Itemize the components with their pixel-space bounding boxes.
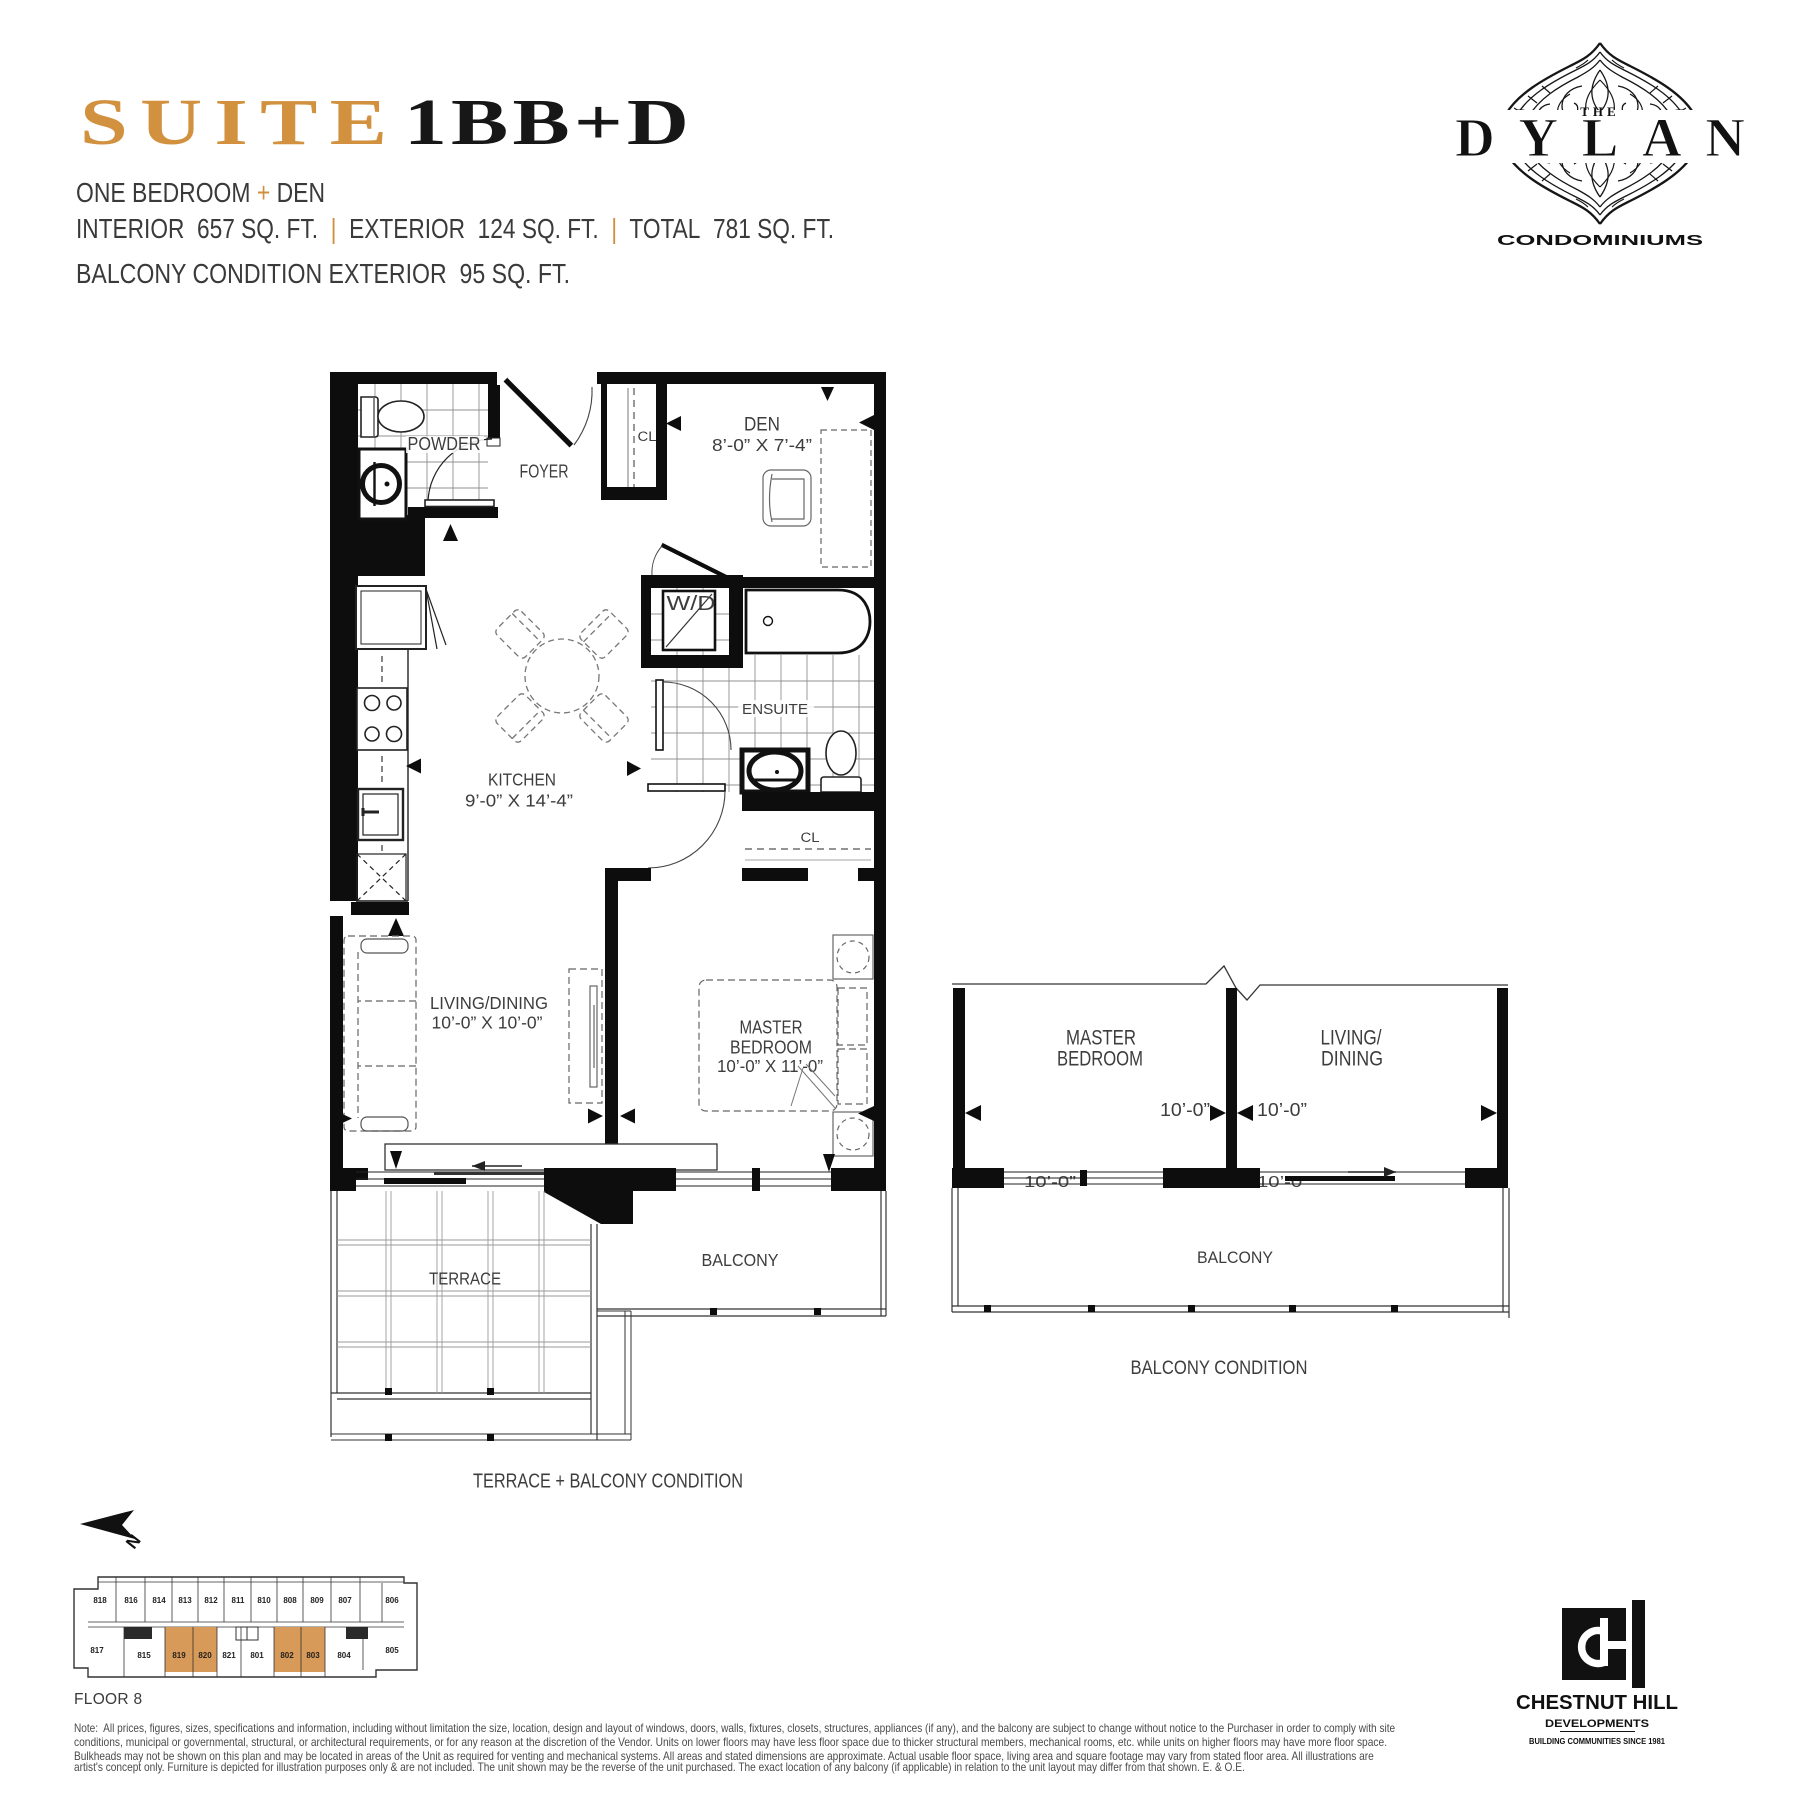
svg-text:8’-0” X 7’-4”: 8’-0” X 7’-4” bbox=[712, 435, 812, 455]
svg-text:804: 804 bbox=[337, 1651, 351, 1660]
svg-text:CL: CL bbox=[638, 429, 658, 444]
svg-text:10’-0”: 10’-0” bbox=[1257, 1100, 1307, 1120]
svg-text:801: 801 bbox=[250, 1651, 264, 1660]
svg-text:10’-0”: 10’-0” bbox=[1160, 1100, 1210, 1120]
svg-text:POWDER: POWDER bbox=[408, 434, 481, 454]
svg-text:813: 813 bbox=[178, 1596, 192, 1605]
svg-text:802: 802 bbox=[280, 1651, 294, 1660]
svg-text:811: 811 bbox=[232, 1596, 245, 1605]
svg-text:10’-0”: 10’-0” bbox=[1024, 1174, 1076, 1191]
svg-text:807: 807 bbox=[338, 1596, 352, 1605]
svg-text:809: 809 bbox=[310, 1596, 324, 1605]
svg-text:BUILDING COMMUNITIES SINCE 198: BUILDING COMMUNITIES SINCE 1981 bbox=[1529, 1736, 1665, 1746]
svg-text:BALCONY CONDITION: BALCONY CONDITION bbox=[1131, 1358, 1308, 1379]
svg-text:BALCONY: BALCONY bbox=[702, 1250, 779, 1270]
svg-text:816: 816 bbox=[124, 1596, 138, 1605]
svg-text:CL: CL bbox=[801, 830, 821, 845]
svg-text:BEDROOM: BEDROOM bbox=[1057, 1048, 1143, 1071]
svg-text:DINING: DINING bbox=[1321, 1048, 1383, 1071]
svg-text:W/D: W/D bbox=[667, 593, 716, 615]
svg-text:819: 819 bbox=[172, 1651, 186, 1660]
svg-text:818: 818 bbox=[93, 1596, 107, 1605]
svg-text:KITCHEN: KITCHEN bbox=[488, 770, 556, 790]
svg-text:808: 808 bbox=[283, 1596, 297, 1605]
svg-text:MASTER: MASTER bbox=[740, 1018, 803, 1038]
svg-text:ENSUITE: ENSUITE bbox=[742, 702, 808, 718]
svg-text:806: 806 bbox=[385, 1596, 399, 1605]
svg-text:815: 815 bbox=[137, 1651, 151, 1660]
svg-text:TERRACE + BALCONY CONDITION: TERRACE + BALCONY CONDITION bbox=[473, 1471, 743, 1493]
svg-text:814: 814 bbox=[152, 1596, 166, 1605]
svg-text:810: 810 bbox=[257, 1596, 271, 1605]
svg-text:LIVING/DINING: LIVING/DINING bbox=[430, 993, 548, 1013]
svg-text:BALCONY: BALCONY bbox=[1197, 1248, 1273, 1267]
svg-text:LIVING/: LIVING/ bbox=[1321, 1027, 1382, 1050]
svg-text:812: 812 bbox=[204, 1596, 218, 1605]
svg-text:821: 821 bbox=[222, 1651, 236, 1660]
svg-text:CHESTNUT HILL: CHESTNUT HILL bbox=[1516, 1692, 1678, 1714]
svg-text:820: 820 bbox=[198, 1651, 212, 1660]
svg-text:FOYER: FOYER bbox=[520, 462, 569, 482]
svg-text:MASTER: MASTER bbox=[1066, 1027, 1136, 1050]
svg-text:803: 803 bbox=[306, 1651, 320, 1660]
svg-text:DEVELOPMENTS: DEVELOPMENTS bbox=[1545, 1718, 1649, 1730]
svg-text:805: 805 bbox=[385, 1646, 399, 1655]
svg-text:TERRACE: TERRACE bbox=[429, 1269, 501, 1289]
svg-text:DEN: DEN bbox=[744, 415, 780, 436]
svg-text:817: 817 bbox=[90, 1646, 104, 1655]
svg-text:BEDROOM: BEDROOM bbox=[730, 1038, 812, 1058]
svg-text:10’-0” X 10’-0”: 10’-0” X 10’-0” bbox=[432, 1013, 543, 1033]
svg-text:9’-0” X 14’-4”: 9’-0” X 14’-4” bbox=[465, 791, 573, 811]
